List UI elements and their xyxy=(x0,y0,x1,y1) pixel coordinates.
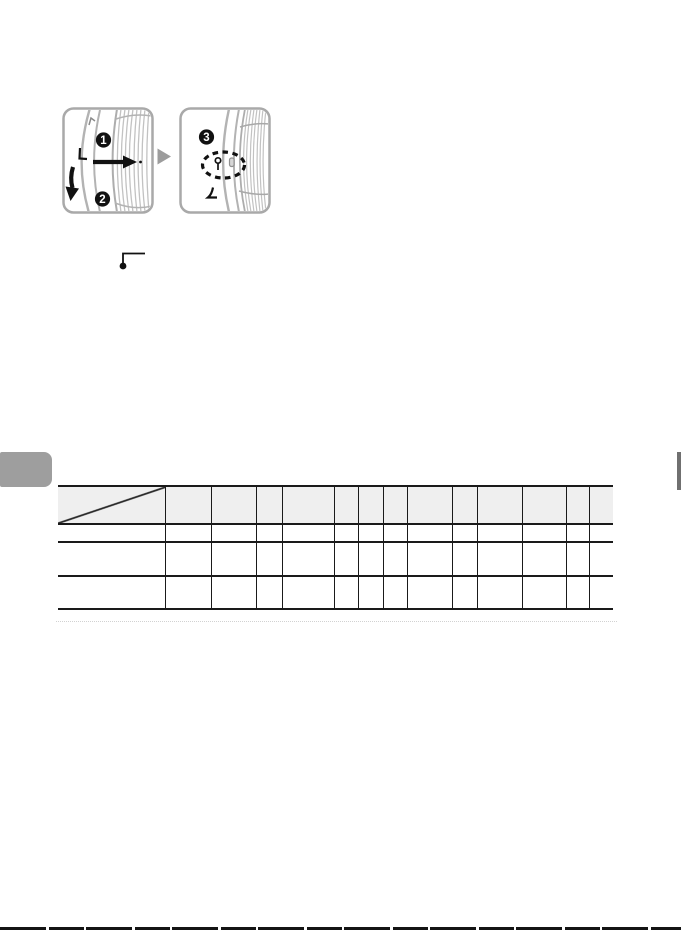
figure-step-3-panel: 3 xyxy=(181,109,270,213)
table-cell xyxy=(407,542,452,576)
table-cell xyxy=(211,576,256,609)
table-cell xyxy=(58,524,165,542)
table-cell xyxy=(58,542,165,576)
table-cell xyxy=(383,524,407,542)
table-cell xyxy=(334,576,358,609)
table-cell xyxy=(589,524,613,542)
table-header-cell xyxy=(211,486,256,524)
manual-page: 1 2 xyxy=(0,0,681,936)
switch-target-dot xyxy=(139,161,142,164)
table-header-cell xyxy=(358,486,383,524)
table-cell xyxy=(477,524,522,542)
table-cell xyxy=(407,576,452,609)
step-arrow-icon xyxy=(158,149,172,165)
table-cell xyxy=(452,576,477,609)
table-cell xyxy=(589,576,613,609)
table-header-cell xyxy=(452,486,477,524)
rotate-down-arrow-icon xyxy=(71,167,73,188)
table-cell xyxy=(358,524,383,542)
table-cell xyxy=(477,542,522,576)
table-cell xyxy=(358,542,383,576)
table-cell xyxy=(358,576,383,609)
table-cell xyxy=(334,524,358,542)
compatibility-table xyxy=(58,485,613,610)
table-cell xyxy=(452,524,477,542)
table-cell xyxy=(165,542,211,576)
zoom-lock-switch-knob xyxy=(230,158,235,167)
table-header-cell xyxy=(589,486,613,524)
table-header-cell xyxy=(566,486,589,524)
callout-2-badge: 2 xyxy=(95,191,110,206)
table-cell xyxy=(566,576,589,609)
table-header-diagonal-cell xyxy=(58,486,165,524)
table-header-cell xyxy=(334,486,358,524)
svg-text:3: 3 xyxy=(203,132,209,144)
table-cell xyxy=(522,524,566,542)
svg-text:2: 2 xyxy=(99,194,105,206)
table-cell xyxy=(383,576,407,609)
table-cell xyxy=(589,542,613,576)
table-header-cell xyxy=(477,486,522,524)
table-cell xyxy=(256,542,282,576)
table-cell xyxy=(566,542,589,576)
table-header-cell xyxy=(522,486,566,524)
lens-operation-figure: 1 2 xyxy=(55,95,280,225)
page-edge-tab-left xyxy=(0,452,52,487)
faint-print-remnant-line xyxy=(56,621,617,622)
table-header-cell xyxy=(282,486,334,524)
table-header-cell xyxy=(407,486,452,524)
callout-3-badge: 3 xyxy=(199,129,214,144)
table-header-cell xyxy=(165,486,211,524)
table-cell xyxy=(211,524,256,542)
table-cell xyxy=(452,542,477,576)
table-cell xyxy=(282,576,334,609)
zoom-lock-symbol-icon xyxy=(116,247,150,275)
table-header-cell xyxy=(256,486,282,524)
table-cell xyxy=(165,524,211,542)
table-cell xyxy=(407,524,452,542)
page-bottom-scan-line xyxy=(0,927,681,930)
page-edge-tab-right xyxy=(677,452,681,490)
figure-step-1-2-panel: 1 2 xyxy=(64,108,153,213)
table-body xyxy=(58,486,613,609)
table-cell xyxy=(334,542,358,576)
table-cell xyxy=(256,576,282,609)
table-header-cell xyxy=(383,486,407,524)
table-cell xyxy=(58,576,165,609)
table-cell xyxy=(477,576,522,609)
table-cell xyxy=(256,524,282,542)
table-cell xyxy=(522,576,566,609)
table-cell xyxy=(282,542,334,576)
table-cell xyxy=(522,542,566,576)
svg-text:1: 1 xyxy=(100,135,107,147)
table-cell xyxy=(282,524,334,542)
table-cell xyxy=(383,542,407,576)
table-cell xyxy=(165,576,211,609)
callout-1-badge: 1 xyxy=(96,132,111,147)
table-cell xyxy=(211,542,256,576)
table-cell xyxy=(566,524,589,542)
